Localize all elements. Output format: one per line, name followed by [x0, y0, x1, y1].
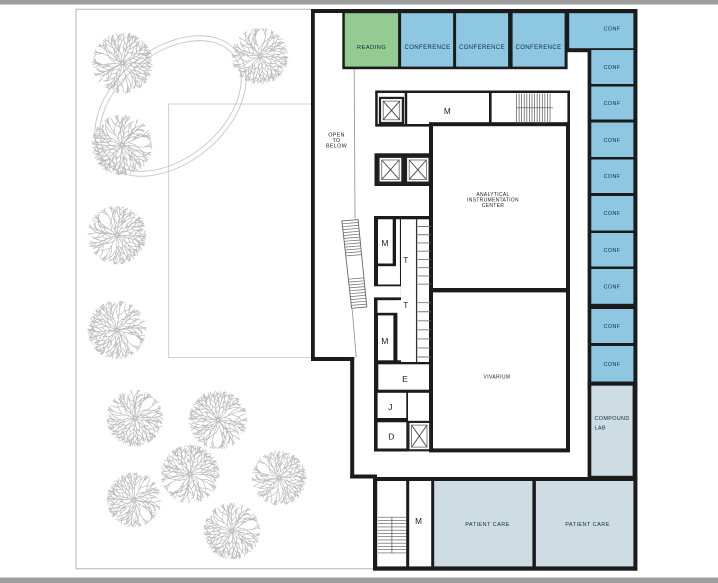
svg-text:PATIENT CARE: PATIENT CARE	[465, 522, 510, 528]
svg-text:CONF: CONF	[604, 362, 621, 368]
svg-text:CONFERENCE: CONFERENCE	[459, 45, 505, 51]
svg-text:D: D	[388, 431, 395, 441]
svg-text:M: M	[415, 517, 422, 526]
svg-text:CONFERENCE: CONFERENCE	[404, 45, 450, 51]
svg-text:BELOW: BELOW	[326, 144, 348, 150]
svg-text:CONF: CONF	[604, 65, 621, 71]
svg-text:T: T	[403, 301, 408, 310]
svg-text:COMPOUND: COMPOUND	[595, 416, 630, 422]
svg-text:CONF: CONF	[604, 248, 621, 254]
svg-text:CONF: CONF	[604, 27, 621, 33]
svg-text:CENTER: CENTER	[482, 203, 504, 209]
svg-text:CONF: CONF	[604, 101, 621, 107]
svg-text:M: M	[381, 238, 389, 248]
svg-text:CONF: CONF	[604, 324, 621, 330]
svg-text:CONF: CONF	[604, 211, 621, 217]
svg-text:E: E	[402, 374, 408, 384]
svg-text:CONF: CONF	[604, 174, 621, 180]
svg-text:CONF: CONF	[604, 284, 621, 290]
svg-text:CONF: CONF	[604, 138, 621, 144]
svg-text:J: J	[388, 402, 393, 412]
svg-text:M: M	[381, 336, 389, 346]
svg-text:LAB: LAB	[595, 425, 606, 431]
svg-text:M: M	[444, 107, 451, 116]
svg-text:VIVARIUM: VIVARIUM	[484, 374, 511, 380]
svg-text:CONFERENCE: CONFERENCE	[515, 45, 561, 51]
svg-text:PATIENT CARE: PATIENT CARE	[565, 522, 610, 528]
svg-text:T: T	[403, 256, 408, 265]
svg-text:READING: READING	[357, 45, 386, 51]
